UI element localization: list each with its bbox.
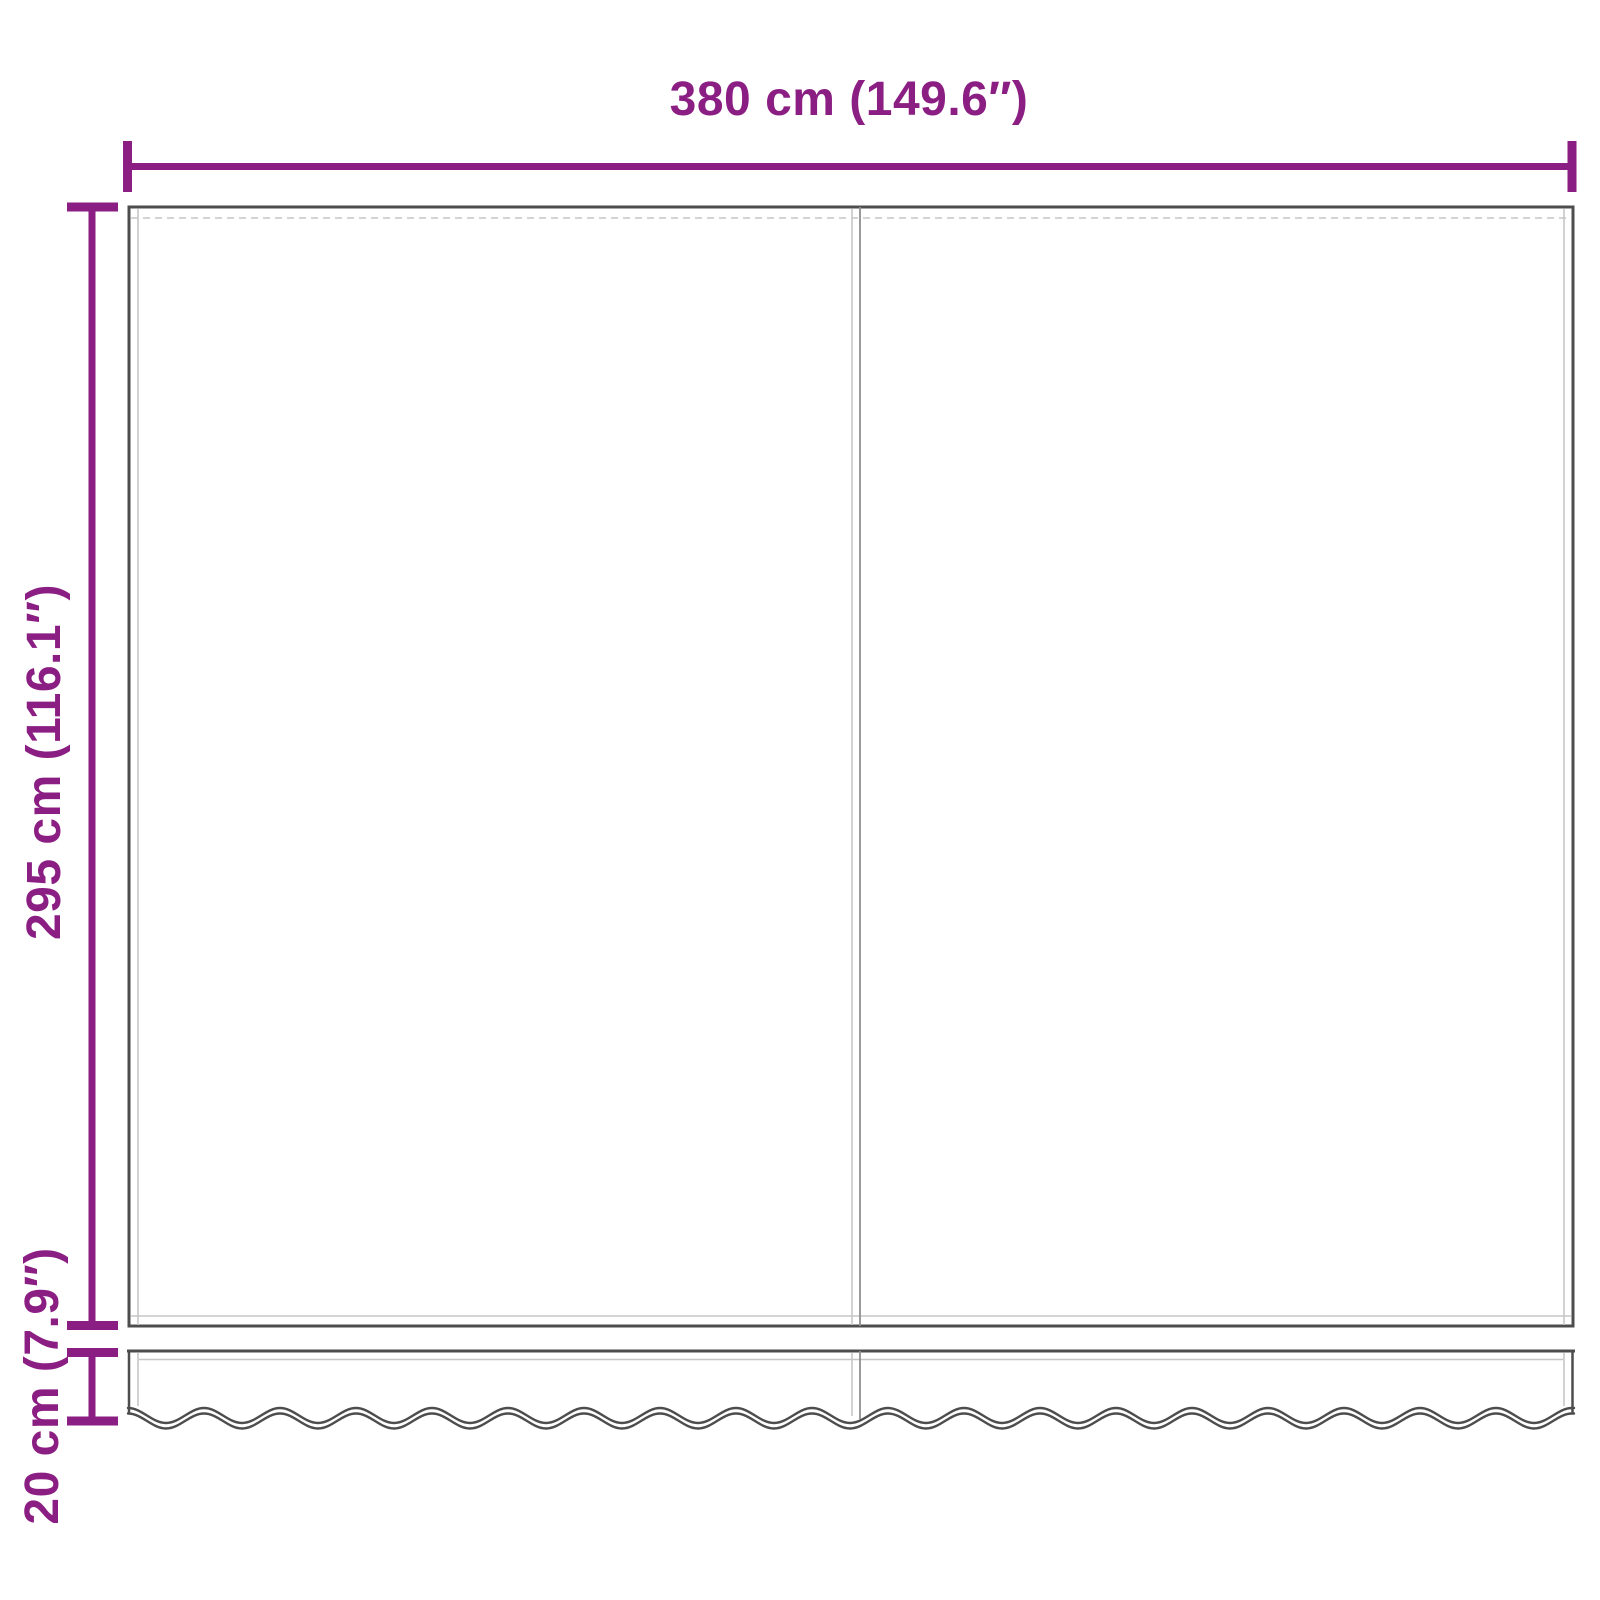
width-dimension-label: 380 cm (149.6″)	[670, 76, 1029, 124]
width-dimension-line	[127, 163, 1572, 170]
valance-dimension-cap-top	[67, 1348, 118, 1357]
valance-strip	[127, 1351, 1575, 1429]
height-dimension	[67, 203, 118, 1331]
awning-dimension-diagram: 380 cm (149.6″) 295 cm (116.1″) 20 cm (7…	[0, 0, 1600, 1600]
height-dimension-cap-bottom	[67, 1321, 118, 1330]
valance-scallop-inner	[128, 1414, 1574, 1429]
height-dimension-cap-top	[67, 203, 118, 212]
width-dimension	[123, 141, 1577, 192]
awning-fabric-panel	[129, 207, 1573, 1326]
height-dimension-label: 295 cm (116.1″)	[21, 584, 69, 940]
valance-dimension-label: 20 cm (7.9″)	[19, 1247, 67, 1524]
valance-dimension	[67, 1348, 118, 1426]
diagram-drawing	[0, 0, 1600, 1600]
valance-dimension-cap-bottom	[67, 1417, 118, 1426]
width-dimension-cap-right	[1568, 141, 1577, 192]
fabric-panel-outline	[129, 207, 1573, 1326]
height-dimension-line	[89, 206, 96, 1326]
width-dimension-cap-left	[123, 141, 132, 192]
valance-dimension-line	[89, 1352, 96, 1418]
